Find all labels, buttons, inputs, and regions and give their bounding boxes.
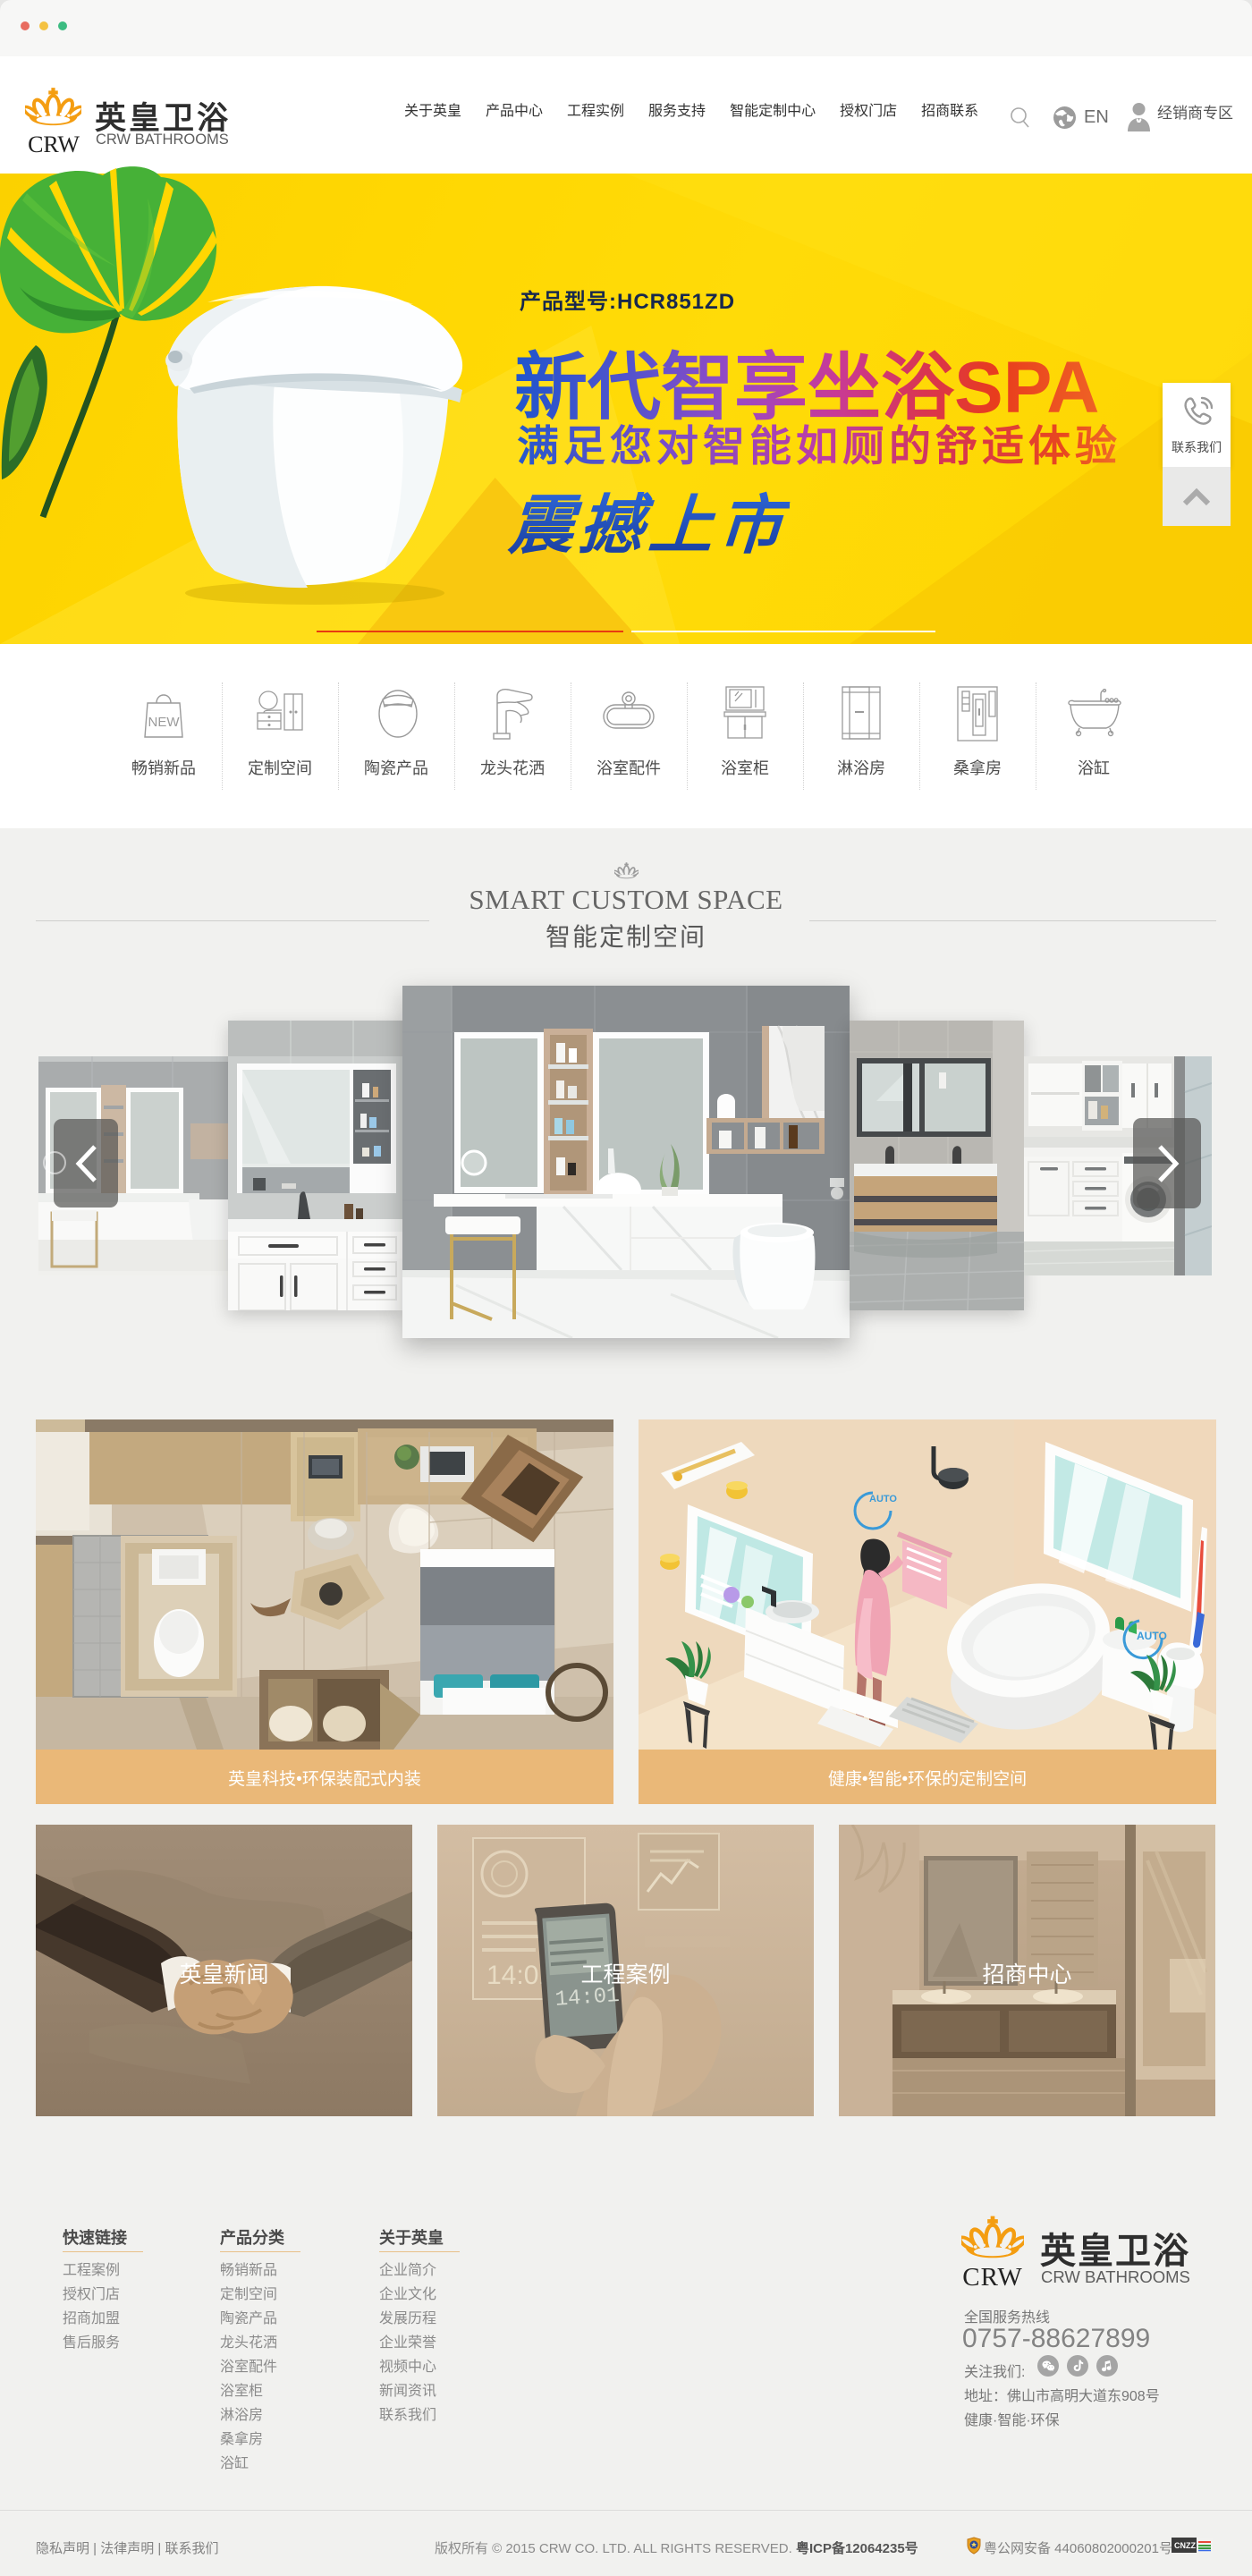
- svg-text:CNZZ: CNZZ: [1174, 2541, 1196, 2550]
- svg-text:AUTO: AUTO: [1137, 1630, 1167, 1642]
- svg-text:AUTO: AUTO: [869, 1494, 897, 1504]
- svg-text:NEW: NEW: [148, 715, 181, 730]
